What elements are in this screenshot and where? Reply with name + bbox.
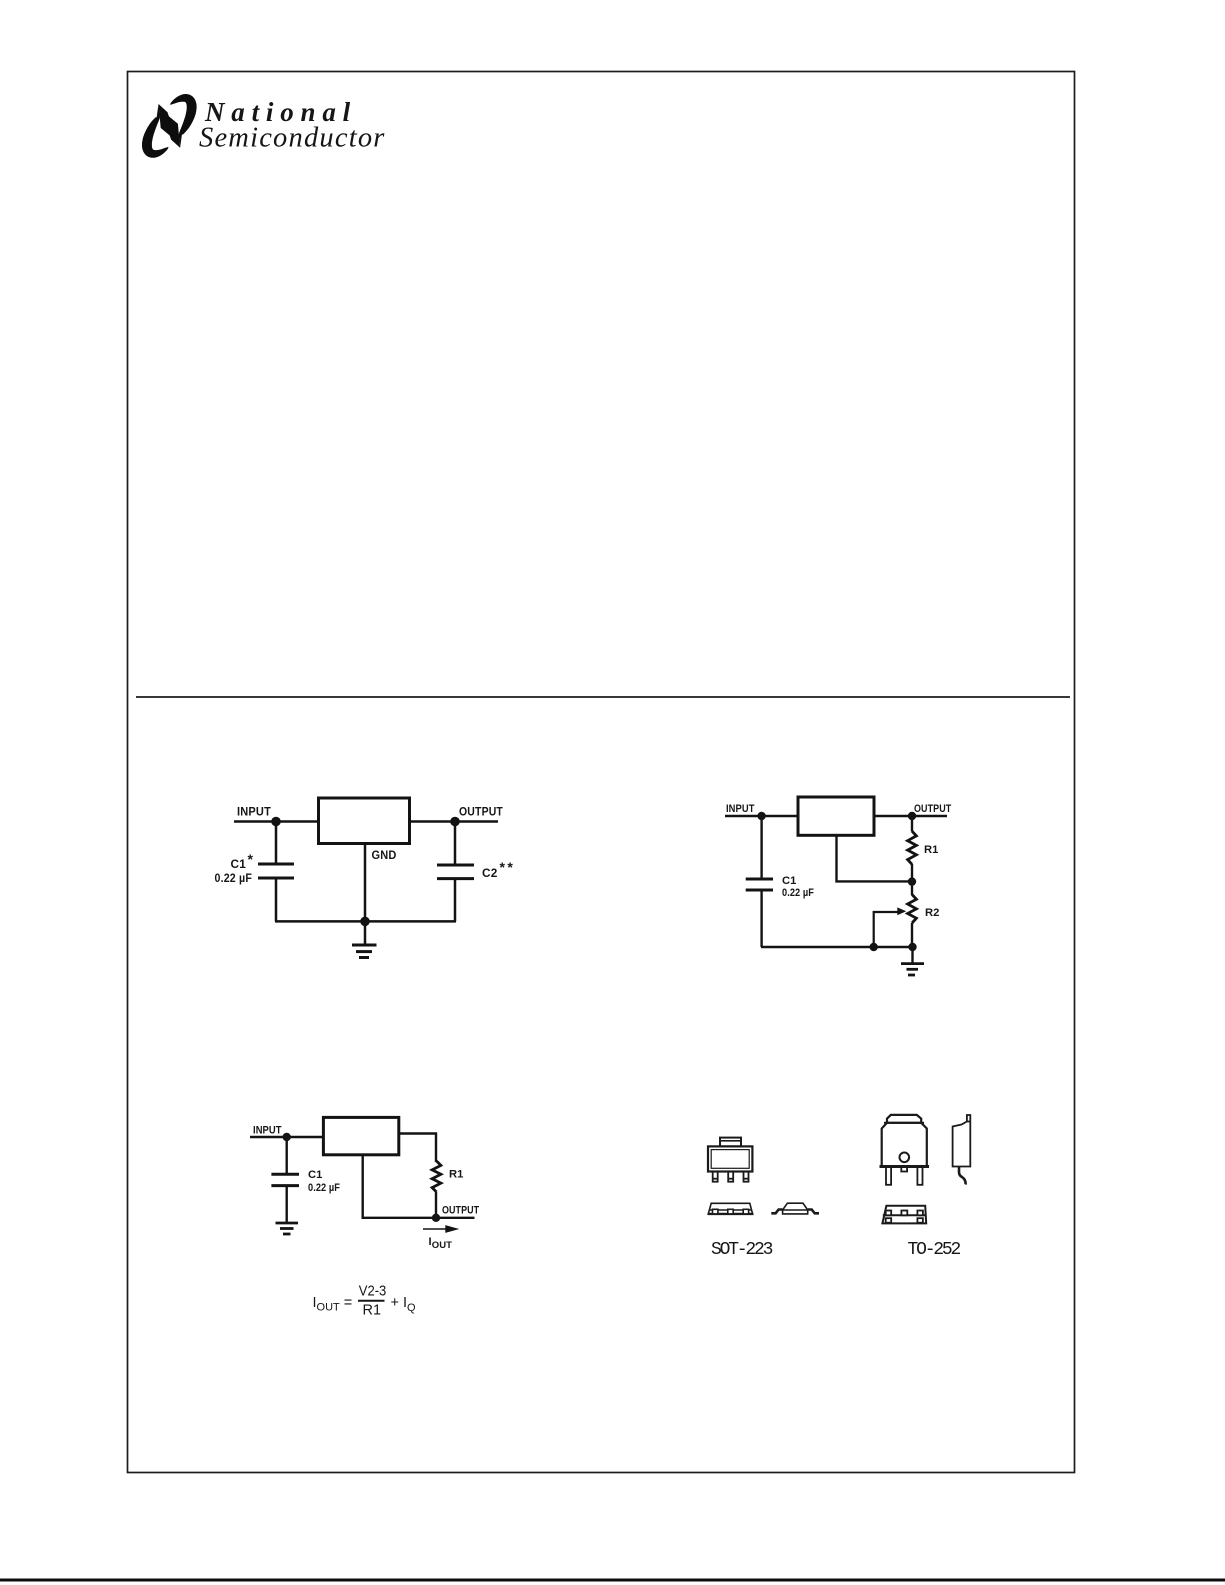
svg-text:Semiconductor: Semiconductor (199, 123, 386, 154)
svg-text:TO-252: TO-252 (908, 1240, 961, 1260)
svg-text:+ IQ: + IQ (391, 1295, 417, 1314)
svg-text:OUTPUT: OUTPUT (442, 1205, 479, 1217)
svg-text:V2-3: V2-3 (359, 1284, 387, 1300)
svg-text:C1: C1 (308, 1169, 323, 1181)
svg-text:INPUT: INPUT (237, 805, 272, 819)
svg-text:R1: R1 (449, 1169, 464, 1181)
svg-text:R1: R1 (363, 1303, 382, 1319)
svg-text:SOT-223: SOT-223 (711, 1240, 773, 1260)
svg-text:0.22 µF: 0.22 µF (308, 1182, 340, 1194)
svg-text:R1: R1 (924, 844, 939, 856)
svg-text:IOUT =: IOUT = (313, 1295, 353, 1314)
svg-text:OUTPUT: OUTPUT (459, 805, 504, 819)
svg-text:INPUT: INPUT (726, 803, 755, 815)
svg-text:0.22 µF: 0.22 µF (782, 887, 814, 899)
svg-text:0.22 µF: 0.22 µF (215, 871, 253, 885)
svg-text:C1: C1 (782, 875, 797, 887)
svg-text:GND: GND (372, 848, 397, 862)
svg-text:C2**: C2** (482, 859, 515, 880)
svg-text:IOUT: IOUT (429, 1236, 453, 1251)
svg-text:R2: R2 (925, 907, 940, 919)
svg-text:C1*: C1* (231, 851, 254, 871)
svg-text:INPUT: INPUT (253, 1125, 282, 1137)
svg-text:OUTPUT: OUTPUT (914, 803, 951, 815)
